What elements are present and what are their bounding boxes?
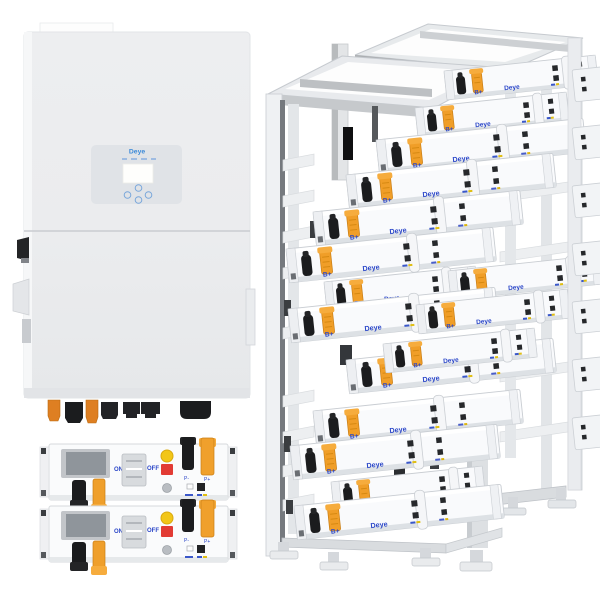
svg-text:OFF: OFF [147, 528, 159, 534]
svg-text:Deye: Deye [129, 149, 145, 156]
svg-text:P-: P- [184, 538, 189, 544]
svg-text:OFF: OFF [147, 466, 159, 472]
svg-text:P-: P- [184, 476, 189, 482]
svg-text:P+: P+ [204, 477, 210, 483]
svg-text:P+: P+ [204, 539, 210, 545]
